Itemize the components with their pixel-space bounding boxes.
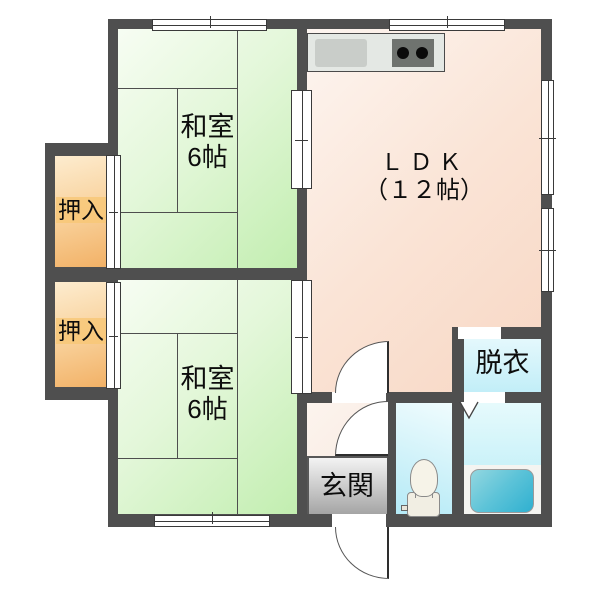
- opening-front-door: [332, 514, 386, 527]
- window-right-upper: [541, 80, 554, 195]
- bathtub-icon: [470, 469, 534, 513]
- toilet-handle: [401, 505, 408, 511]
- label-entrance: 玄関: [307, 471, 387, 502]
- closet-label-text: 押入: [56, 197, 106, 223]
- window-bottom-washitsu: [154, 515, 270, 527]
- burner-icon: [416, 47, 428, 59]
- window-right-lower: [541, 208, 554, 292]
- dressing-label-text: 脱衣: [476, 348, 530, 378]
- stove-icon: [392, 39, 434, 67]
- room-name: 和室: [118, 364, 297, 395]
- toilet-icon: [396, 455, 452, 517]
- label-washitsu-1: 和室 6帖: [118, 112, 297, 173]
- window-top-ldk: [389, 19, 505, 31]
- label-closet-2: 押入: [43, 318, 119, 344]
- toilet-seat-hinge: [432, 493, 433, 498]
- room-name: ＬＤＫ: [307, 149, 541, 175]
- wall-left-upper: [108, 19, 118, 143]
- room-name: 和室: [118, 112, 297, 143]
- wall-toilet-dressing: [452, 339, 464, 514]
- window-top-washitsu: [152, 19, 267, 31]
- wall-left-lower: [108, 400, 118, 514]
- wall-hall-toilet: [387, 403, 396, 514]
- entrance-label-text: 玄関: [320, 471, 374, 501]
- fold-door-mark-icon: [459, 401, 480, 421]
- label-ldk: ＬＤＫ （１２帖）: [307, 149, 541, 205]
- label-washitsu-2: 和室 6帖: [118, 364, 297, 425]
- burner-icon: [397, 47, 409, 59]
- room-size: 6帖: [118, 143, 297, 173]
- toilet-seat-hinge: [415, 493, 416, 498]
- room-size: 6帖: [118, 395, 297, 425]
- tatami-line: [118, 212, 237, 213]
- label-dressing: 脱衣: [464, 348, 541, 379]
- closet-label-text: 押入: [56, 318, 106, 344]
- toilet-bowl: [410, 459, 438, 497]
- room-size: （１２帖）: [307, 177, 541, 205]
- door-swing-front-door: [335, 527, 389, 579]
- tatami-line: [118, 458, 237, 459]
- kitchen-counter: [307, 33, 445, 72]
- wall-between-rooms: [108, 268, 297, 280]
- floor-plan: 和室 6帖 和室 6帖 ＬＤＫ （１２帖） 押入 押入 玄関 脱衣: [0, 0, 600, 600]
- kitchen-sink-icon: [315, 39, 367, 67]
- label-closet-1: 押入: [43, 197, 119, 223]
- opening-dressing: [458, 327, 501, 339]
